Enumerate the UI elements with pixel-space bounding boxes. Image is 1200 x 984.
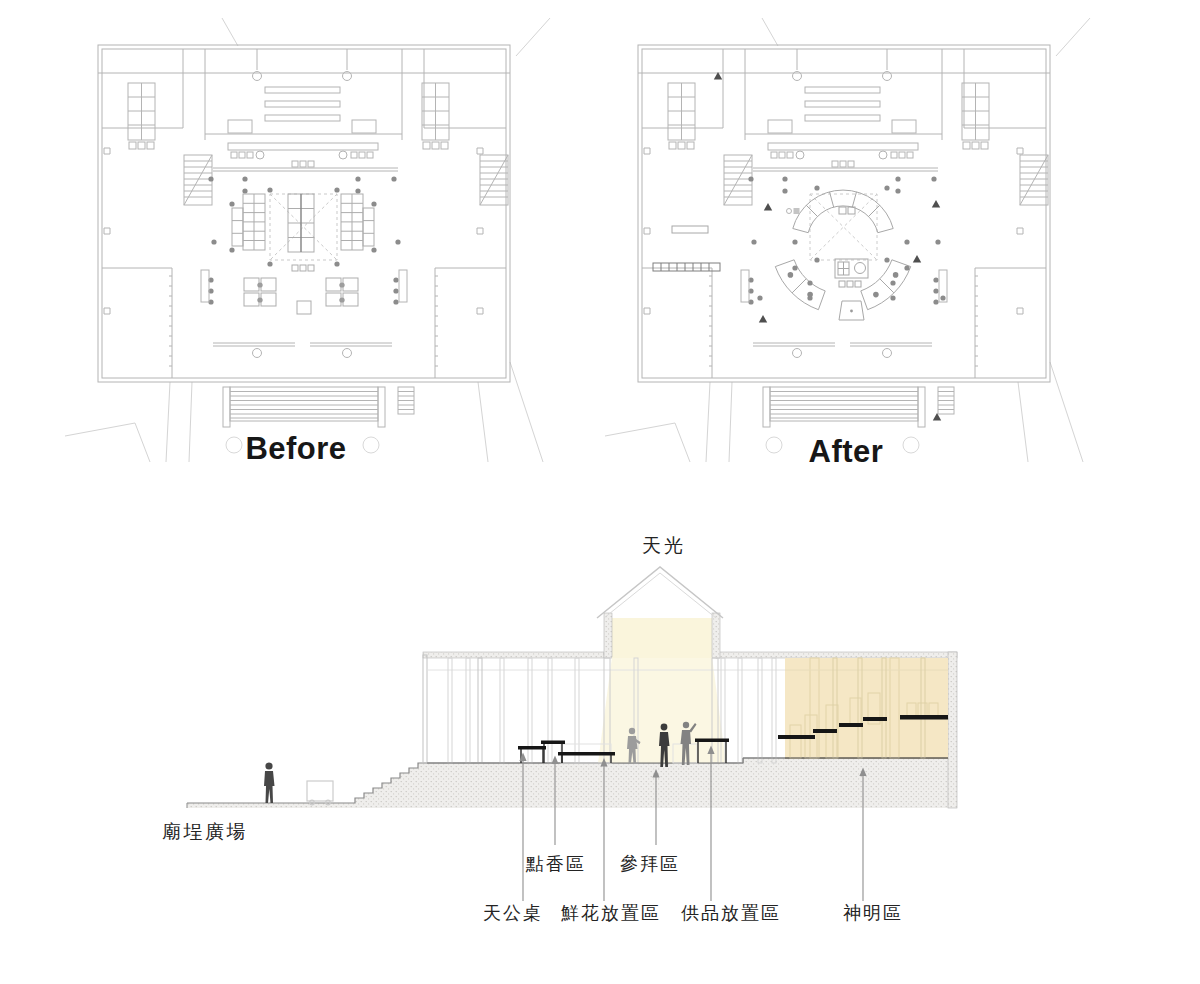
after-left-rack [653, 263, 720, 271]
after-central-arc-layout [653, 72, 946, 421]
section-drawing [150, 515, 1000, 945]
before-caption: Before [245, 431, 346, 467]
deity-area-highlight [785, 658, 948, 758]
after-central-table [835, 259, 868, 287]
before-square-tables [244, 278, 358, 306]
worship-area-label: 參拜區 [620, 852, 680, 876]
skylight-tower [597, 567, 723, 658]
right-cut-wall [948, 652, 957, 808]
after-caption: After [809, 434, 884, 470]
after-floor-plan [605, 18, 1090, 462]
offering-table-top [695, 739, 729, 743]
skylight-label: 天光 [642, 533, 686, 559]
before-floor-plan [65, 18, 550, 462]
incense-table-top [541, 741, 565, 745]
before-central-altar-layout [229, 187, 376, 314]
after-marker-triangles [714, 72, 941, 421]
deity-area-label: 神明區 [843, 901, 903, 925]
offering-area-label: 供品放置區 [681, 901, 781, 925]
ground-mass [187, 758, 948, 808]
tiangong-table-top [518, 746, 546, 750]
plaza-person [264, 762, 275, 803]
flower-area-label: 鮮花放置區 [561, 901, 661, 925]
flower-bench-top [558, 752, 615, 756]
plaza-label: 廟埕廣場 [162, 819, 248, 845]
page: { "plans": { "before_caption": "Before",… [0, 0, 1200, 984]
floor-plans-canvas [0, 0, 1200, 505]
incense-area-label: 點香區 [526, 852, 586, 876]
tiangong-table-label: 天公桌 [483, 901, 543, 925]
plaza-cart [307, 781, 333, 805]
